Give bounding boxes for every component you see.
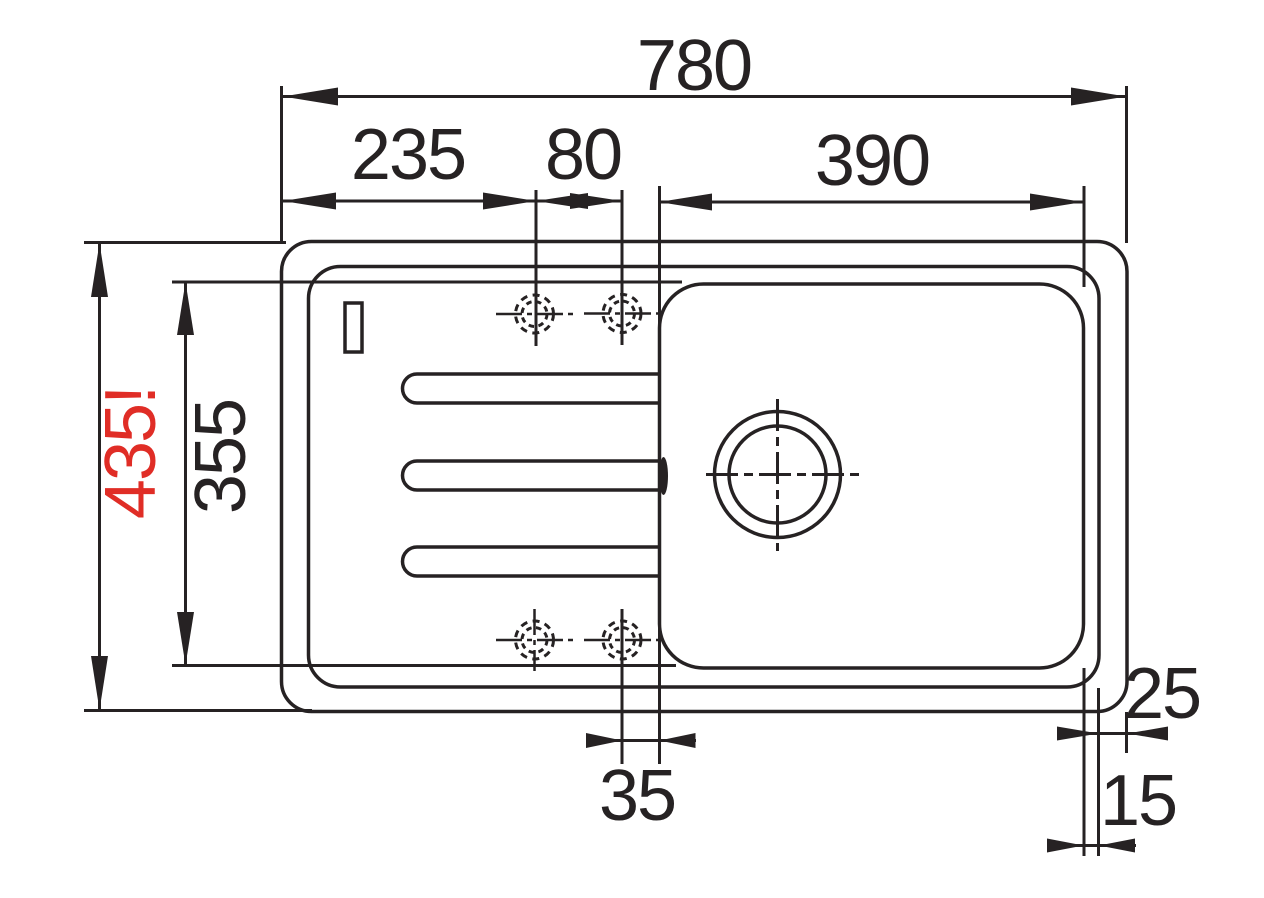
dimension-435-overall-depth: 435! [91, 243, 171, 710]
dim-label-overall-depth: 435! [91, 387, 171, 519]
dimension-355-bowl-depth: 355 [177, 282, 261, 665]
dim-label-right-rim: 25 [1124, 654, 1200, 734]
dim-label-hole-spacing: 80 [545, 115, 621, 195]
arrowhead-top [177, 282, 194, 335]
dim-label-overall-width: 780 [637, 26, 751, 106]
arrowhead-left [586, 733, 622, 748]
dim-label-hole-to-bowl: 35 [599, 756, 675, 836]
dim-label-rim-to-bowl: 15 [1100, 761, 1176, 841]
dimension-390-bowl-width: 390 [659, 121, 1083, 211]
dim-label-left-to-hole: 235 [351, 115, 465, 195]
dimension-80-hole-spacing: 80 [536, 115, 622, 209]
dimension-25-right-rim: 25 [1057, 654, 1200, 741]
tap-hole-bottom-left [496, 609, 573, 671]
arrowhead-left [1057, 727, 1099, 741]
drainer-groove-1 [403, 374, 660, 403]
sink-inner-rim [309, 267, 1100, 688]
dimension-35-hole-to-bowl: 35 [586, 733, 696, 836]
drainer-grooves [403, 374, 660, 576]
arrowhead-right [570, 193, 622, 209]
dim-label-bowl-depth: 355 [181, 400, 261, 514]
arrowhead-left [283, 193, 336, 210]
arrowhead-right [660, 733, 696, 748]
arrowhead-top [91, 243, 108, 297]
arrowhead-right [483, 193, 536, 210]
drainer-groove-3 [403, 547, 660, 576]
arrowhead-left [1047, 839, 1084, 853]
dim-label-bowl-width: 390 [815, 121, 929, 201]
arrowhead-left [659, 194, 712, 211]
arrowhead-bottom [91, 656, 108, 710]
dimension-15-rim-to-bowl: 15 [1047, 761, 1176, 853]
arrowhead-right [1030, 194, 1083, 211]
sink-outer-edge [282, 242, 1128, 712]
arrowhead-left [283, 88, 338, 106]
technical-drawing-canvas: 780 235 80 390 435! 355 35 [0, 0, 1264, 898]
overflow-slot [345, 303, 362, 352]
drainer-groove-2 [403, 461, 660, 490]
sink-dimension-drawing: 780 235 80 390 435! 355 35 [0, 0, 1264, 898]
drain-hole [706, 399, 861, 551]
arrowhead-right [1071, 88, 1126, 106]
dimension-235-left-to-hole: 235 [283, 115, 536, 210]
tap-holes [496, 295, 658, 672]
dimension-780-overall-width: 780 [283, 26, 1126, 106]
sink-outline [282, 242, 1128, 712]
arrowhead-bottom [177, 612, 194, 665]
